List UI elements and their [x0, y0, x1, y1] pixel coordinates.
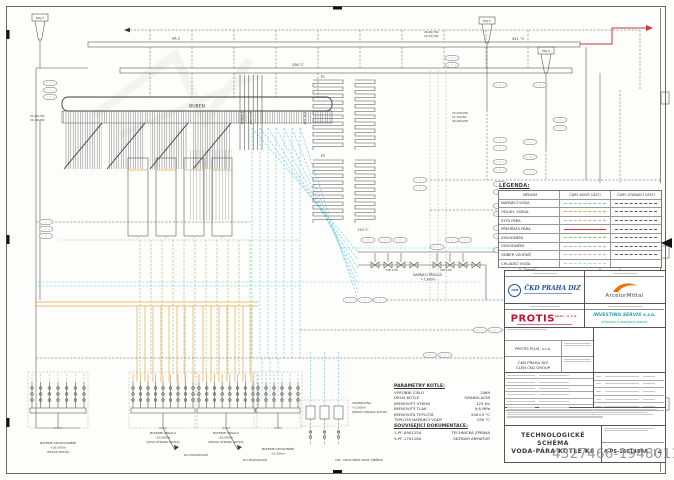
legend-box: LEGENDA: MÉDIUM ČÁRY–NOVÉ ČÁSTI ČÁRY–STÁ… — [498, 183, 662, 268]
notes-strip — [505, 409, 665, 426]
documentation-title: SOUVISEJÍCÍ DOKUMENTACE: — [394, 424, 490, 429]
diagram-label-ln2: 01-10/700 — [30, 118, 45, 122]
diagram-label-p1: P1 — [321, 75, 325, 79]
diagram-label-d318: Ø31,8x5 — [302, 112, 307, 125]
protis-suffix: spol. s r.o. — [555, 314, 578, 318]
parameter-row: TEPLOTA NAPÁJECÍ VODY190 °C — [394, 417, 490, 422]
drawing-sheet: { "sheet": { "watermark": "4327466-19480… — [0, 0, 674, 480]
parameters-rows: VÝROBNÍ ČÍSLO2069DRUH KOTLEGRANULAČNÍJME… — [394, 390, 490, 422]
diagram-label-napaj1: NAPÁJECÍ PŘÍSLUŠ. — [413, 272, 443, 277]
diagram-label-t536: 536 °C — [292, 63, 304, 67]
diagram-label-ln7: 40-200/250 — [452, 119, 468, 123]
diagram-label-t190: 190 °C — [358, 228, 370, 232]
boiler-parameters: PARAMETRY KOTLE: VÝROBNÍ ČÍSLO2069DRUH K… — [394, 384, 490, 441]
legend-title: LEGENDA: — [499, 183, 662, 189]
investing-servis-logo: INVESTING SERVIS s.r.o. příprava a reali… — [585, 310, 664, 327]
firm1-name: PROTIS PLUS, s.r.o. — [505, 346, 561, 351]
legend-row: CHLADÍCÍ VODA — [499, 259, 661, 268]
protis-text: PROTIS — [511, 313, 555, 324]
legend-row: NAPÁJECÍ VODA — [499, 199, 661, 208]
legend-row: ODLUH, ODKAL — [499, 207, 661, 216]
legend-row: PŘEHŘÁTÁ PÁRA — [499, 224, 661, 233]
parameters-title: PARAMETRY KOTLE: — [394, 384, 490, 389]
documentation-row: 9-PF-1701180SEZNAM ARMATUR — [394, 436, 490, 441]
arcelormittal-logo: ArcelorMittal — [585, 277, 664, 303]
revision-table — [594, 373, 664, 407]
diagram-label-bat2b: ±0,000m — [219, 436, 233, 440]
diagram-label-vz1: VZORKOVNA — [352, 401, 372, 405]
diagram-label-bat2a: BATERIE ODKALU — [150, 431, 176, 435]
firm2-subname: ČLEN ČKD GROUP — [505, 365, 561, 370]
diagram-label-t541: 541 °C — [512, 37, 525, 41]
diagram-label-bat4a: BATERIE ODVODNĚNÍ — [262, 446, 294, 451]
protis-logo: PROTISspol. s r.o. — [505, 310, 584, 327]
legend-row: SYTÁ PÁRA — [499, 216, 661, 225]
arcelormittal-swoosh-icon — [612, 282, 638, 293]
investing-text: INVESTING SERVIS s.r.o. — [585, 313, 664, 318]
diagram-label-bat2a: BATERIE ODKALU — [213, 431, 239, 435]
diagram-label-bat2c: (LEVÁ STRANA KOTLE) — [146, 439, 179, 444]
ckd-praha-diz-logo: ČKD ČKD PRAHA DIZ — [505, 277, 584, 303]
ckd-logo-text: ČKD PRAHA DIZ — [524, 286, 580, 292]
diagram-label-bat2b: ±0,000m — [156, 436, 170, 440]
diagram-label-bat1a: BATERIE ODVZDUŠNĚNÍ — [40, 440, 76, 445]
ckd-roundel-icon: ČKD — [508, 284, 521, 297]
diagram-label-zhas: DO ZHÁŠOVAČE — [243, 457, 267, 462]
investing-subtext: příprava a realizace staveb — [585, 320, 664, 324]
diagram-label-vz3: (PRAVÁ STRANA KOTLE) — [352, 409, 387, 414]
diagram-label-bat1c: (STROP KOTLE) — [47, 450, 70, 454]
blank-cell — [594, 328, 664, 372]
diagram-label-vz2: +1,500m — [352, 406, 366, 410]
legend-row: ODBĚR VZORKŮ — [499, 250, 661, 259]
diagram-label-p2: P2 — [321, 154, 325, 158]
diagram-label-d38: Ø38x4,5 — [239, 112, 244, 125]
arcelormittal-text: ArcelorMittal — [605, 293, 643, 299]
legend-header-row: MÉDIUM ČÁRY–NOVÉ ČÁSTI ČÁRY–STÁVAJÍCÍ ČÁ… — [499, 191, 661, 199]
safety-valve-label: POJ.V — [542, 49, 551, 53]
legend-row: ZAVODNĚNÍ — [499, 233, 661, 242]
diagram-label-ln4: 24-25/700 — [424, 34, 439, 38]
diagram-label-napaj2: +7,300m — [421, 278, 436, 282]
safety-valve-label: POJ.V — [36, 16, 45, 20]
title-block: ČKD ČKD PRAHA DIZ ArcelorMittal — [504, 270, 666, 463]
listing-watermark: 4327466-19480111 — [552, 446, 674, 462]
diagram-label-chl: CHL. VODA PŘES KONT. MĚŘENÍ — [335, 457, 383, 462]
diagram-label-buben: BUBEN — [189, 104, 205, 110]
diagram-label-pr5: PŘ 5 — [172, 36, 180, 41]
diagram-label-dn100: DN 100 — [386, 268, 397, 272]
approvals-table — [505, 373, 594, 407]
diagram-label-dn100: DN 100 — [440, 268, 451, 272]
diagram-label-bat1b: +18,500m — [50, 446, 66, 450]
diagram-label-bat4b: +1,500m — [271, 452, 285, 456]
diagram-label-d63: Ø63,5x8 — [248, 112, 253, 125]
diagram-label-zhas: DO ZHÁŠOVAČE — [184, 452, 208, 457]
documentation-rows: 1-PF-0901250TECHNICKÁ ZPRÁVA9-PF-1701180… — [394, 430, 490, 441]
safety-valve-label: POJ.V — [483, 19, 492, 23]
legend-row: ODVODNĚNÍ — [499, 242, 661, 251]
legend-table: MÉDIUM ČÁRY–NOVÉ ČÁSTI ČÁRY–STÁVAJÍCÍ ČÁ… — [498, 190, 662, 268]
diagram-label-bat3c: (PRAVÁ STRANA KOTLE) — [208, 439, 243, 444]
